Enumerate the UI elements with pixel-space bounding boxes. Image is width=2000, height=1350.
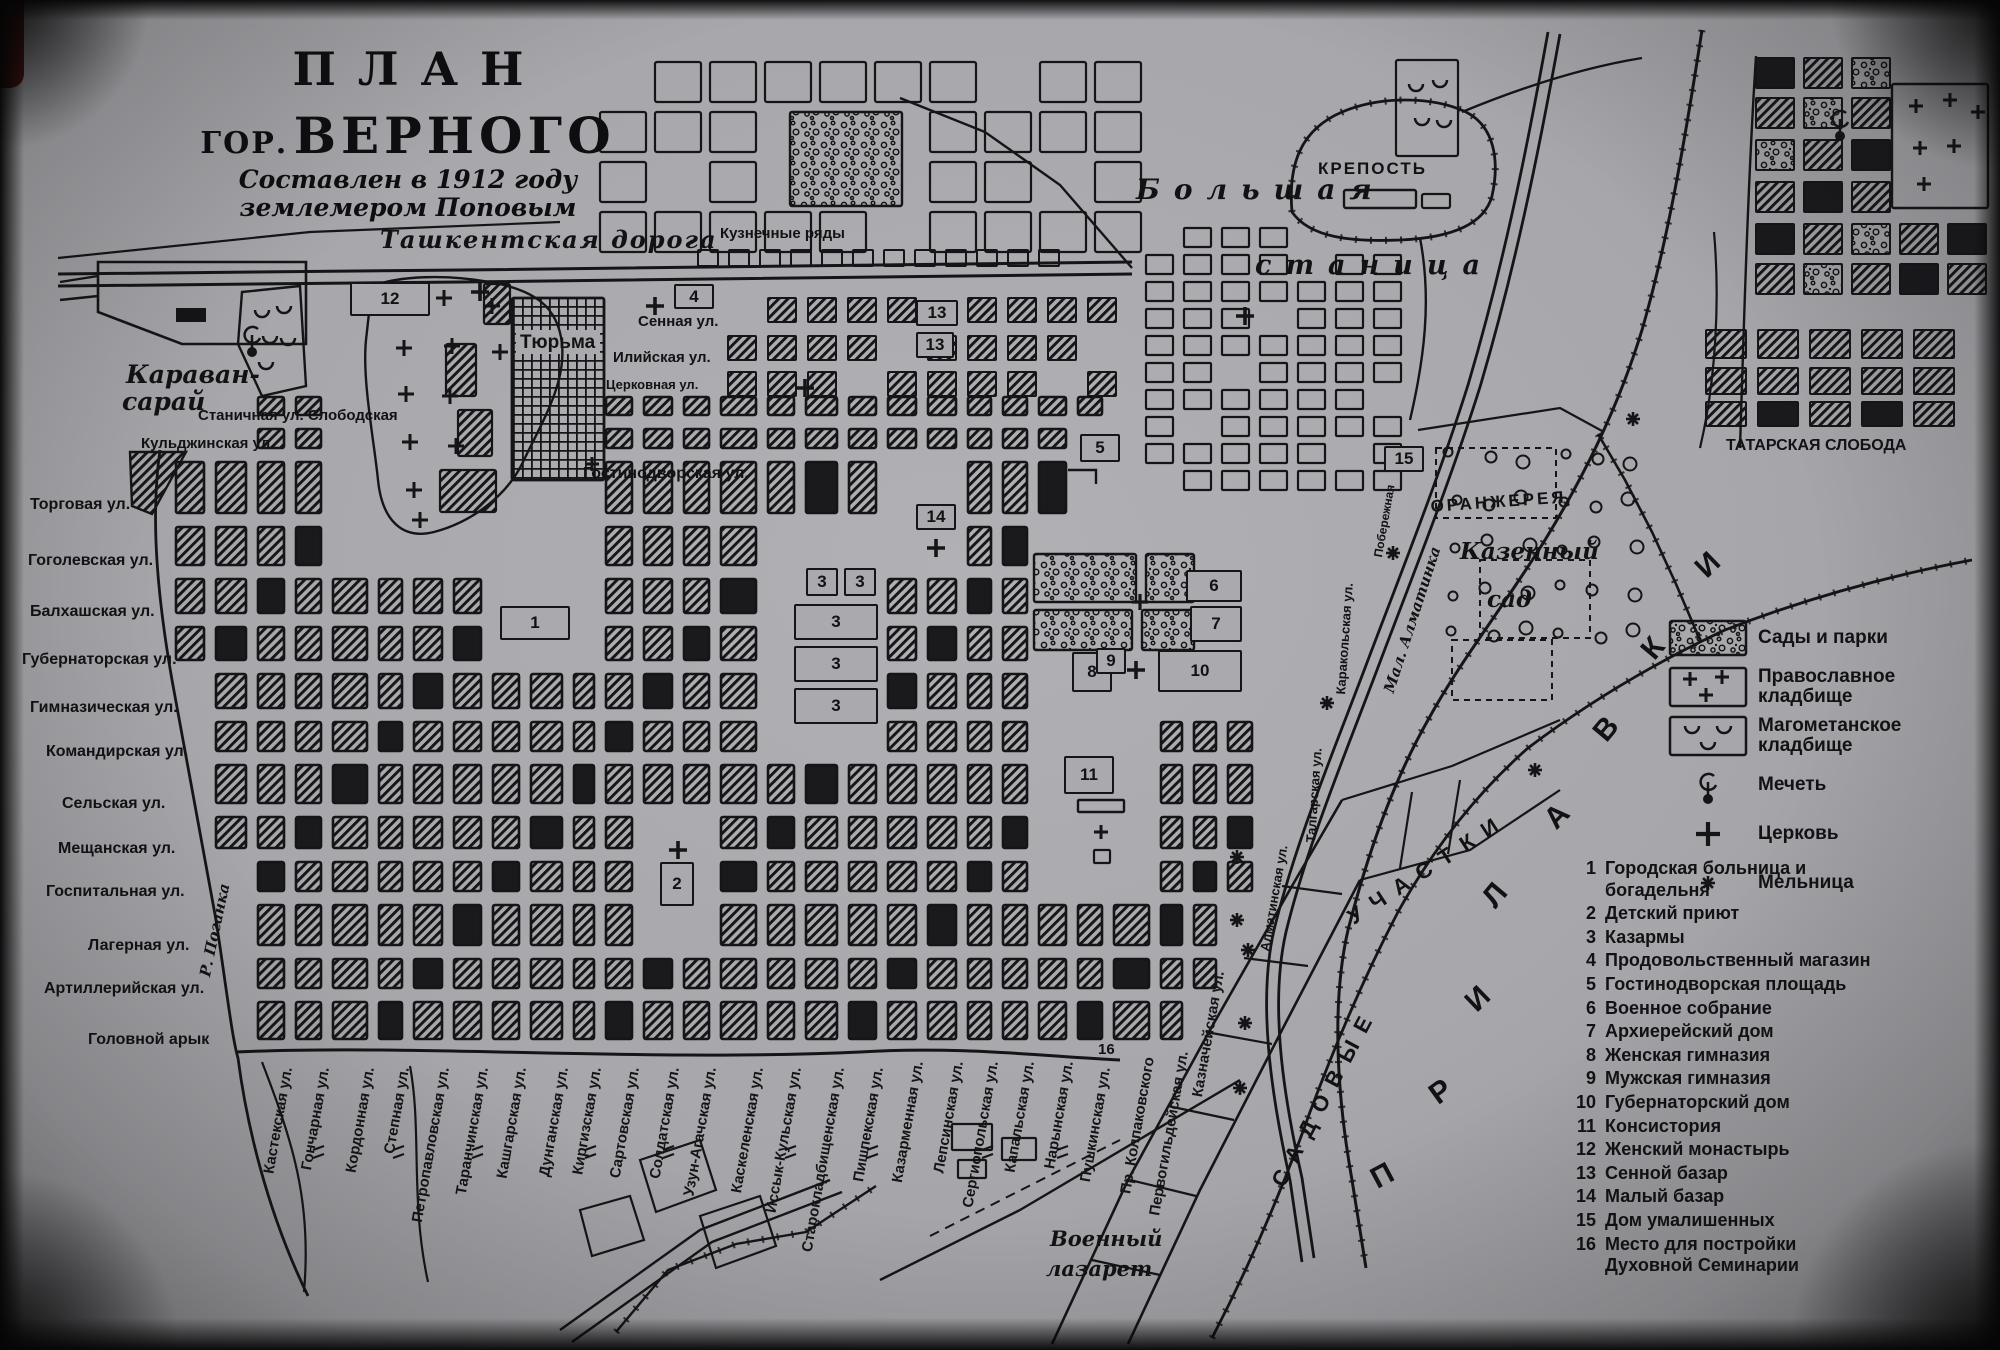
legend-item: Сады и парки <box>1660 616 1998 660</box>
index-number: 7 <box>1566 1021 1596 1043</box>
map-label: Каракольская ул. <box>1334 582 1355 694</box>
map-label: Караван- <box>126 362 260 387</box>
index-number: 12 <box>1566 1139 1596 1161</box>
index-number: 6 <box>1566 998 1596 1020</box>
index-number: 15 <box>1566 1210 1596 1232</box>
map-marker: 14 <box>916 504 956 530</box>
index-number: 16 <box>1566 1234 1596 1277</box>
legend-symbol <box>1660 616 1758 660</box>
index-label: Продовольственный магазин <box>1605 950 1885 972</box>
map-label: Станичная ул. Слободская <box>198 408 398 423</box>
title-prefix: ГОР. <box>200 126 288 161</box>
index-item: 8Женская гимназия <box>1566 1045 2000 1067</box>
legend-symbol <box>1660 812 1758 856</box>
street-label: Головной арык <box>88 1032 209 1048</box>
index-number: 8 <box>1566 1045 1596 1067</box>
legend-label: Мечеть <box>1758 775 1978 795</box>
index-number: 14 <box>1566 1186 1596 1208</box>
index-item: 5Гостинодворская площадь <box>1566 974 2000 996</box>
map-label: Илийская ул. <box>613 350 711 365</box>
orthodox-cemetery-icon <box>1666 665 1752 709</box>
muslim-cemetery-icon <box>1666 714 1752 758</box>
map-label: ТАТАРСКАЯ СЛОБОДА <box>1726 438 1906 454</box>
street-label: Сельская ул. <box>62 796 165 812</box>
map-marker: 15 <box>1384 446 1424 472</box>
map-marker: 7 <box>1190 606 1242 642</box>
legend-label: Сады и парки <box>1758 628 1978 648</box>
legend-item: Мечеть <box>1660 763 1998 807</box>
index-item: 15Дом умалишенных <box>1566 1210 2000 1232</box>
index-item: 7Архиерейский дом <box>1566 1021 2000 1043</box>
legend-symbol <box>1660 665 1758 709</box>
title-subtitle-2: землемером Поповым <box>158 195 658 221</box>
region-letter: И <box>1460 981 1496 1018</box>
map-label: Большая <box>1136 176 1386 204</box>
index-label: Казармы <box>1605 927 1885 949</box>
map-title-line2: ГОР. ВЕРНОГО <box>158 106 658 165</box>
index-label: Гостинодворская площадь <box>1605 974 1885 996</box>
index-number: 5 <box>1566 974 1596 996</box>
map-marker: 3 <box>794 604 878 640</box>
legend-item: Церковь <box>1660 812 1998 856</box>
map-label: Побережная <box>1372 484 1397 558</box>
map-title: ПЛАН <box>158 42 658 96</box>
legend-item: Православное кладбище <box>1660 665 1998 709</box>
map-label: станица <box>1255 252 1494 279</box>
map-label: Церковная ул. <box>606 378 698 391</box>
index-label: Архиерейский дом <box>1605 1021 1885 1043</box>
map-label: Сенная ул. <box>638 314 718 329</box>
map-photo: Кастекская ул.Гончарная ул.Кордонная ул.… <box>0 0 2000 1350</box>
region-letter: И <box>1690 547 1726 584</box>
street-label: Балхашская ул. <box>30 604 155 620</box>
map-label: сад <box>1487 588 1532 611</box>
index-item: 1Городская больница и богадельня <box>1566 858 2000 901</box>
title-main: ВЕРНОГО <box>294 106 616 165</box>
legend-label: Магометанское кладбище <box>1758 716 1978 756</box>
index-number: 3 <box>1566 927 1596 949</box>
map-marker: 12 <box>350 282 430 316</box>
index-item: 11Консистория <box>1566 1116 2000 1138</box>
map-label: сарай <box>122 389 205 414</box>
legend-item: Магометанское кладбище <box>1660 714 1998 758</box>
street-label: Артиллерийская ул. <box>44 981 204 997</box>
map-marker: 10 <box>1158 650 1242 692</box>
index-number: 4 <box>1566 950 1596 972</box>
region-letter: П <box>1366 1158 1399 1195</box>
street-label: Гимназическая ул. <box>30 700 178 716</box>
index-item: 4Продовольственный магазин <box>1566 950 2000 972</box>
index-label: Военное собрание <box>1605 998 1885 1020</box>
index-number: 2 <box>1566 903 1596 925</box>
legend-symbol <box>1660 763 1758 807</box>
map-marker: 3 <box>844 568 876 596</box>
map-label: УЧАСТКИ <box>1344 808 1512 928</box>
index-number: 1 <box>1566 858 1596 901</box>
street-label: Губернаторская ул. <box>22 652 177 668</box>
street-label: Командирская ул. <box>46 744 188 760</box>
index-item: 12Женский монастырь <box>1566 1139 2000 1161</box>
index-number: 9 <box>1566 1068 1596 1090</box>
map-marker: 1 <box>500 606 570 640</box>
index-item: 13Сенной базар <box>1566 1163 2000 1185</box>
map-label: лазарет <box>1046 1258 1152 1279</box>
map-label: Кузнечные ряды <box>720 226 845 241</box>
map-label: Мал. Алматинка <box>1382 545 1443 695</box>
map-label: Казенный <box>1460 540 1599 563</box>
map-marker: 4 <box>674 284 714 309</box>
index-label: Дом умалишенных <box>1605 1210 1885 1232</box>
index-label: Женская гимназия <box>1605 1045 1885 1067</box>
legend-label: Православное кладбище <box>1758 667 1978 707</box>
map-marker: 6 <box>1186 570 1242 602</box>
map-label: Кульджинская ул. <box>141 436 274 451</box>
index-item: 2Детский приют <box>1566 903 2000 925</box>
legend-label: Церковь <box>1758 824 1978 844</box>
map-label: КРЕПОСТЬ <box>1318 160 1427 177</box>
index-label: Малый базар <box>1605 1186 1885 1208</box>
index-label: Женский монастырь <box>1605 1139 1885 1161</box>
index-label: Губернаторский дом <box>1605 1092 1885 1114</box>
index-item: 9Мужская гимназия <box>1566 1068 2000 1090</box>
map-marker: 3 <box>794 688 878 724</box>
region-letter: Р <box>1424 1074 1458 1110</box>
street-label: Мещанская ул. <box>58 841 175 857</box>
index-label: Детский приют <box>1605 903 1885 925</box>
index-item: 10Губернаторский дом <box>1566 1092 2000 1114</box>
index-number: 11 <box>1566 1116 1596 1138</box>
map-label: САДОВЫЕ <box>1268 1003 1382 1191</box>
map-marker: 3 <box>806 568 838 596</box>
map-label: 16 <box>1098 1042 1115 1057</box>
street-label: Госпитальная ул. <box>46 884 185 900</box>
index-list: 1Городская больница и богадельня2Детский… <box>1566 858 2000 1279</box>
map-marker: 5 <box>1080 434 1120 462</box>
map-label: Гостинодворская ул. <box>583 466 749 482</box>
street-label: Лагерная ул. <box>88 938 190 954</box>
region-letter: Л <box>1477 878 1514 913</box>
index-item: 14Малый базар <box>1566 1186 2000 1208</box>
street-label: Гоголевская ул. <box>28 553 153 569</box>
title-subtitle-1: Составлен в 1912 году <box>158 167 658 193</box>
map-label: Р. Поганка <box>198 882 232 978</box>
region-letter: А <box>1539 798 1576 834</box>
index-number: 10 <box>1566 1092 1596 1114</box>
map-label: Ташкентская дорога <box>380 228 718 252</box>
index-label: Место для постройки Духовной Семинарии <box>1605 1234 1885 1277</box>
region-letter: В <box>1588 711 1625 747</box>
mosque-icon <box>1666 763 1752 807</box>
photo-artifact <box>0 0 24 88</box>
map-label: Военный <box>1050 1228 1162 1249</box>
parks-icon <box>1666 616 1752 660</box>
legend-symbol <box>1660 714 1758 758</box>
index-label: Консистория <box>1605 1116 1885 1138</box>
index-label: Городская больница и богадельня <box>1605 858 1885 901</box>
map-marker: 2 <box>660 862 694 906</box>
map-label: Талгарская ул. <box>1304 747 1324 842</box>
street-label: Торговая ул. <box>30 497 130 513</box>
index-label: Мужская гимназия <box>1605 1068 1885 1090</box>
map-label: ОРАНЖЕРЕЯ <box>1430 488 1567 514</box>
map-marker: 13 <box>916 332 954 358</box>
title-block: ПЛАН ГОР. ВЕРНОГО Составлен в 1912 году … <box>158 42 658 222</box>
map-label: Алматинская ул. <box>1258 844 1289 952</box>
map-label: Тюрьма <box>520 333 595 352</box>
index-label: Сенной базар <box>1605 1163 1885 1185</box>
map-marker: 3 <box>794 646 878 682</box>
map-marker: 11 <box>1064 756 1114 794</box>
map-marker: 9 <box>1096 648 1126 674</box>
index-item: 6Военное собрание <box>1566 998 2000 1020</box>
index-item: 3Казармы <box>1566 927 2000 949</box>
church-icon <box>1666 812 1752 856</box>
map-marker: 13 <box>916 300 958 326</box>
index-number: 13 <box>1566 1163 1596 1185</box>
index-item: 16Место для постройки Духовной Семинарии <box>1566 1234 2000 1277</box>
